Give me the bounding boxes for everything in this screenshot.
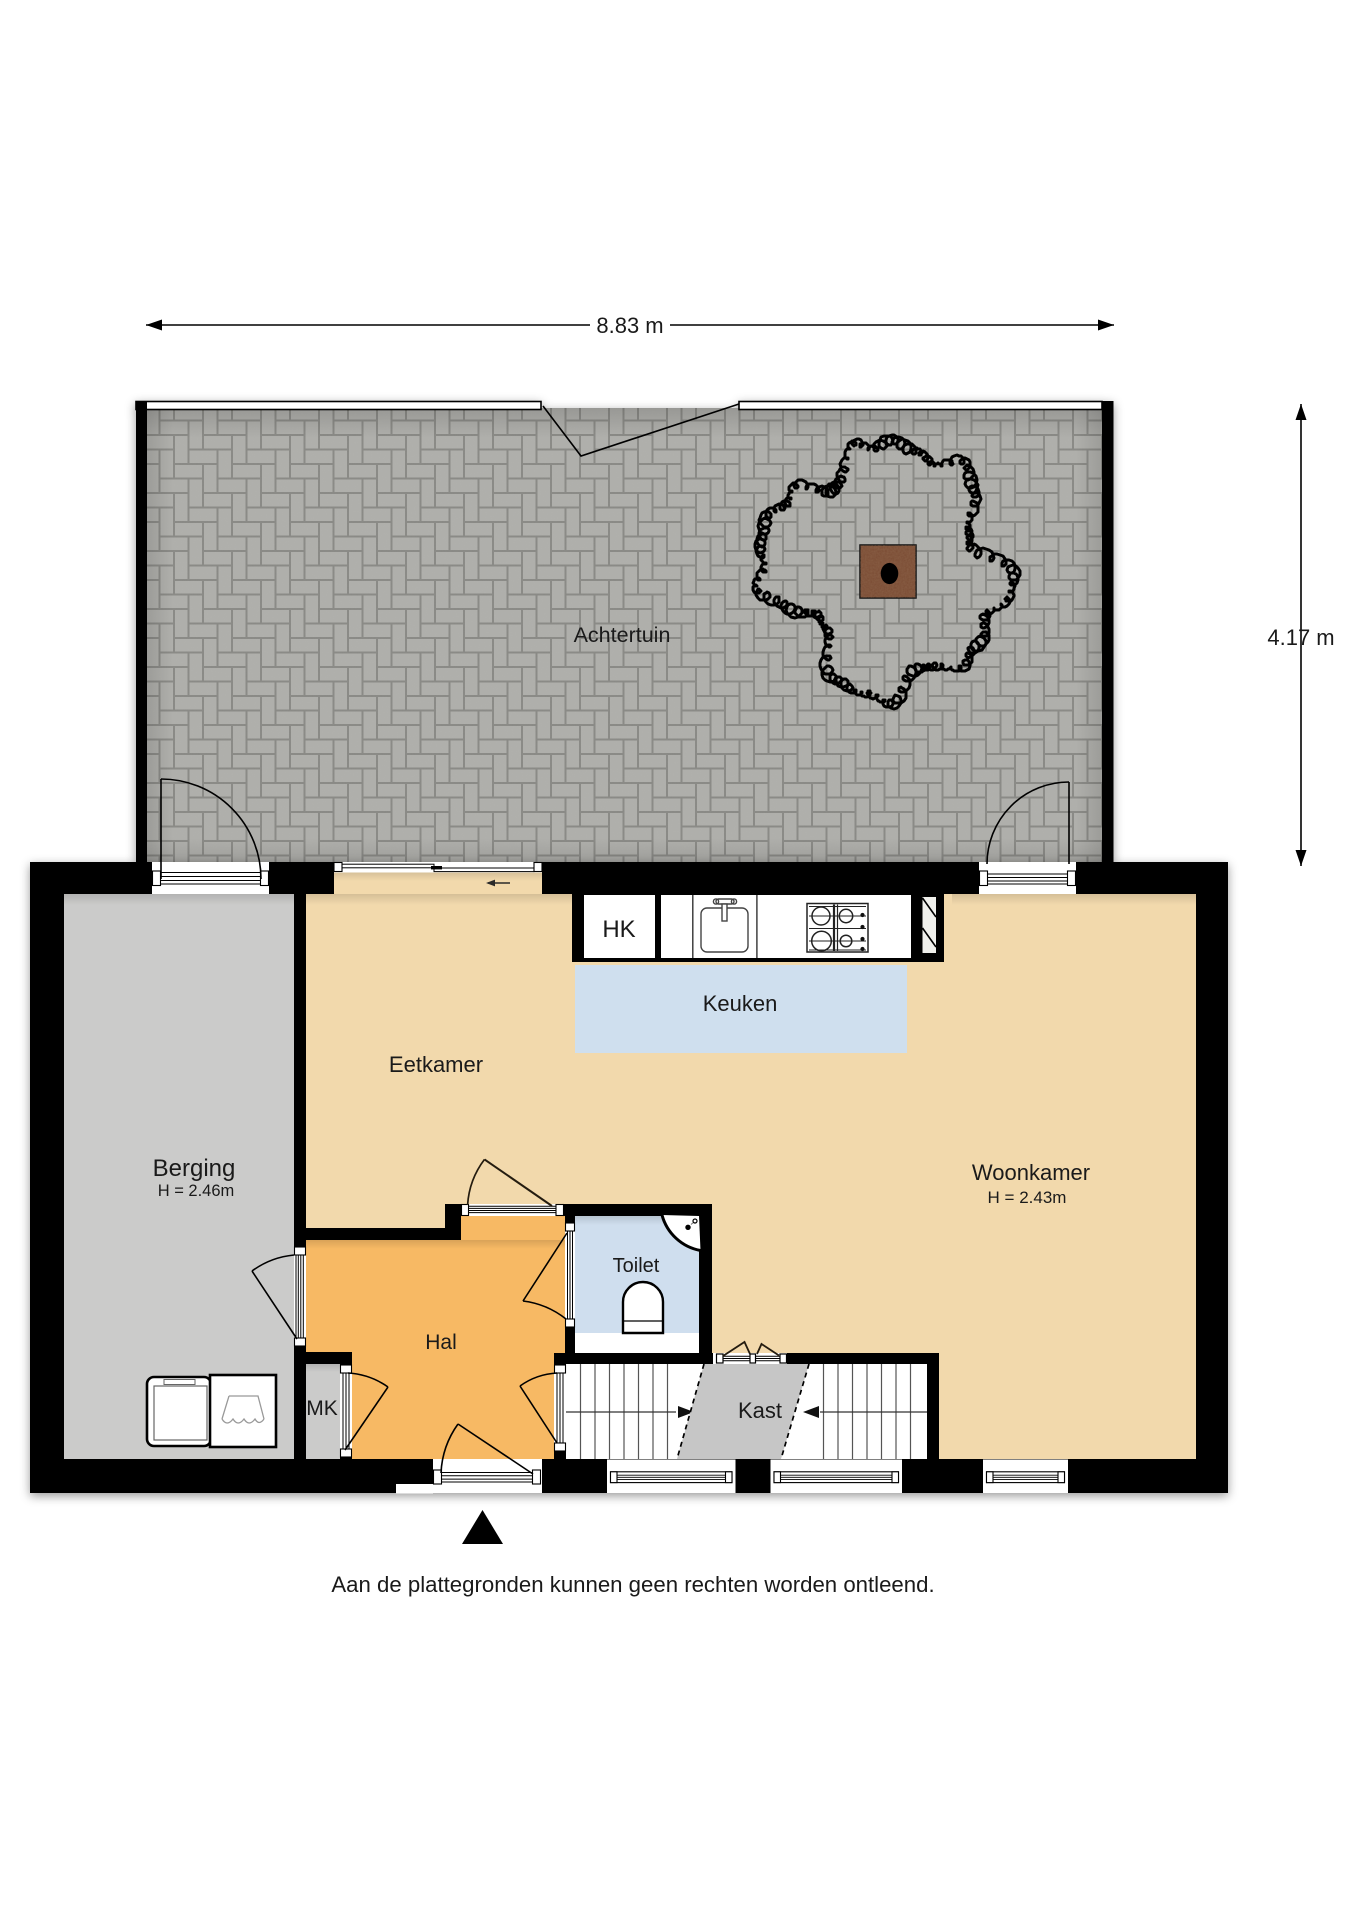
svg-text:4.17 m: 4.17 m: [1267, 625, 1334, 650]
svg-text:Eetkamer: Eetkamer: [389, 1052, 483, 1077]
svg-text:Berging: Berging: [153, 1155, 236, 1182]
svg-text:MK: MK: [306, 1397, 338, 1420]
svg-text:Toilet: Toilet: [613, 1255, 660, 1277]
svg-text:Kast: Kast: [738, 1398, 782, 1423]
svg-text:H = 2.43m: H = 2.43m: [988, 1188, 1067, 1207]
svg-text:Aan de plattegronden kunnen ge: Aan de plattegronden kunnen geen rechten…: [331, 1572, 934, 1597]
svg-text:H = 2.46m: H = 2.46m: [158, 1182, 235, 1200]
svg-text:HK: HK: [602, 916, 635, 943]
svg-text:Keuken: Keuken: [703, 991, 778, 1016]
svg-text:Achtertuin: Achtertuin: [574, 623, 671, 647]
svg-text:8.83 m: 8.83 m: [596, 313, 663, 338]
svg-text:Woonkamer: Woonkamer: [972, 1160, 1090, 1185]
svg-text:Hal: Hal: [425, 1331, 457, 1354]
